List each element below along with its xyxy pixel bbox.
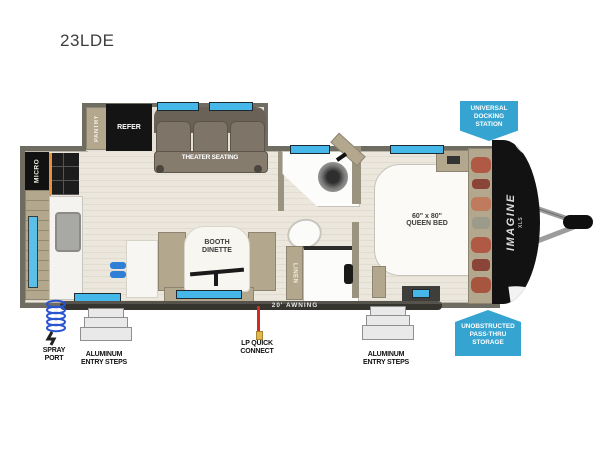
lp-line-icon — [257, 306, 260, 332]
sofa-foot — [156, 165, 164, 173]
badge-line: DOCKING — [460, 113, 518, 121]
dinette-bench — [248, 232, 276, 291]
floorplan-canvas: 23LDE MICRO PANTRY REFER THEATER SEAT — [0, 0, 600, 450]
theater-seating-sofa: THEATER SEATING — [154, 107, 266, 173]
linen-cabinet: LINEN — [286, 246, 303, 300]
free-standing-cabinet — [126, 240, 158, 298]
window — [176, 290, 242, 299]
window — [412, 289, 430, 298]
awning-label: 20' AWNING — [250, 302, 340, 309]
refrigerator: REFER — [106, 104, 152, 151]
lp-quick-connect-label: LP QUICKCONNECT — [220, 340, 294, 356]
bed-size-label: 60" x 80" — [412, 213, 442, 220]
brand-logo: IMAGINE — [505, 172, 517, 272]
pet-bowls — [110, 262, 126, 269]
bedroom-wall — [352, 222, 359, 298]
docking-station-badge: UNIVERSAL DOCKING STATION — [460, 101, 518, 141]
badge-line: STATION — [460, 121, 518, 129]
refrigerator-label: REFER — [117, 124, 141, 131]
pass-thru-storage-badge: UNOBSTRUCTED PASS-THRU STORAGE — [455, 310, 521, 356]
entry-steps-icon — [362, 325, 414, 340]
pantry-label: PANTRY — [87, 108, 107, 149]
entry-steps-front-label: ALUMINUMENTRY STEPS — [348, 351, 424, 367]
sofa-foot — [254, 165, 262, 173]
badge-line: UNOBSTRUCTED — [455, 323, 521, 331]
shower-handle-icon — [344, 264, 353, 284]
entry-steps-icon — [80, 327, 132, 341]
dinette-table-pedestal — [214, 274, 218, 286]
microwave-cabinet: MICRO — [25, 152, 49, 190]
queen-bed: 60" x 80" QUEEN BED — [374, 164, 480, 276]
front-cap: IMAGINE XLS — [492, 140, 540, 304]
window — [209, 102, 253, 111]
stove-cooktop — [49, 153, 79, 195]
dinette-label-line2: DINETTE — [185, 247, 249, 255]
entry-steps-rear-label: ALUMINUMENTRY STEPS — [68, 351, 140, 367]
badge-line: PASS-THRU — [455, 331, 521, 339]
page-title: 23LDE — [60, 31, 114, 51]
theater-seating-label: THEATER SEATING — [154, 154, 266, 161]
lp-connector-icon — [256, 331, 263, 340]
badge-line: STORAGE — [455, 339, 521, 347]
window — [390, 145, 444, 154]
dinette-bench — [158, 232, 186, 291]
window — [290, 145, 330, 154]
microwave-label: MICRO — [25, 152, 49, 190]
bed-foot-cabinet — [372, 266, 386, 298]
linen-label: LINEN — [287, 247, 302, 299]
window — [157, 102, 199, 111]
cap-accent — [508, 281, 540, 304]
pantry-cabinet: PANTRY — [86, 107, 108, 150]
spray-port-coil-icon — [44, 299, 68, 347]
brand-sub-logo: XLS — [518, 210, 524, 234]
bathroom-sink — [318, 162, 348, 192]
dinette-label-line1: BOOTH — [185, 239, 249, 247]
bed-type-label: QUEEN BED — [406, 220, 448, 227]
pet-bowls — [110, 271, 126, 278]
kitchen-sink — [55, 212, 81, 252]
hutch-window — [28, 216, 38, 288]
cap-accent — [508, 140, 540, 163]
badge-line: UNIVERSAL — [460, 105, 518, 113]
